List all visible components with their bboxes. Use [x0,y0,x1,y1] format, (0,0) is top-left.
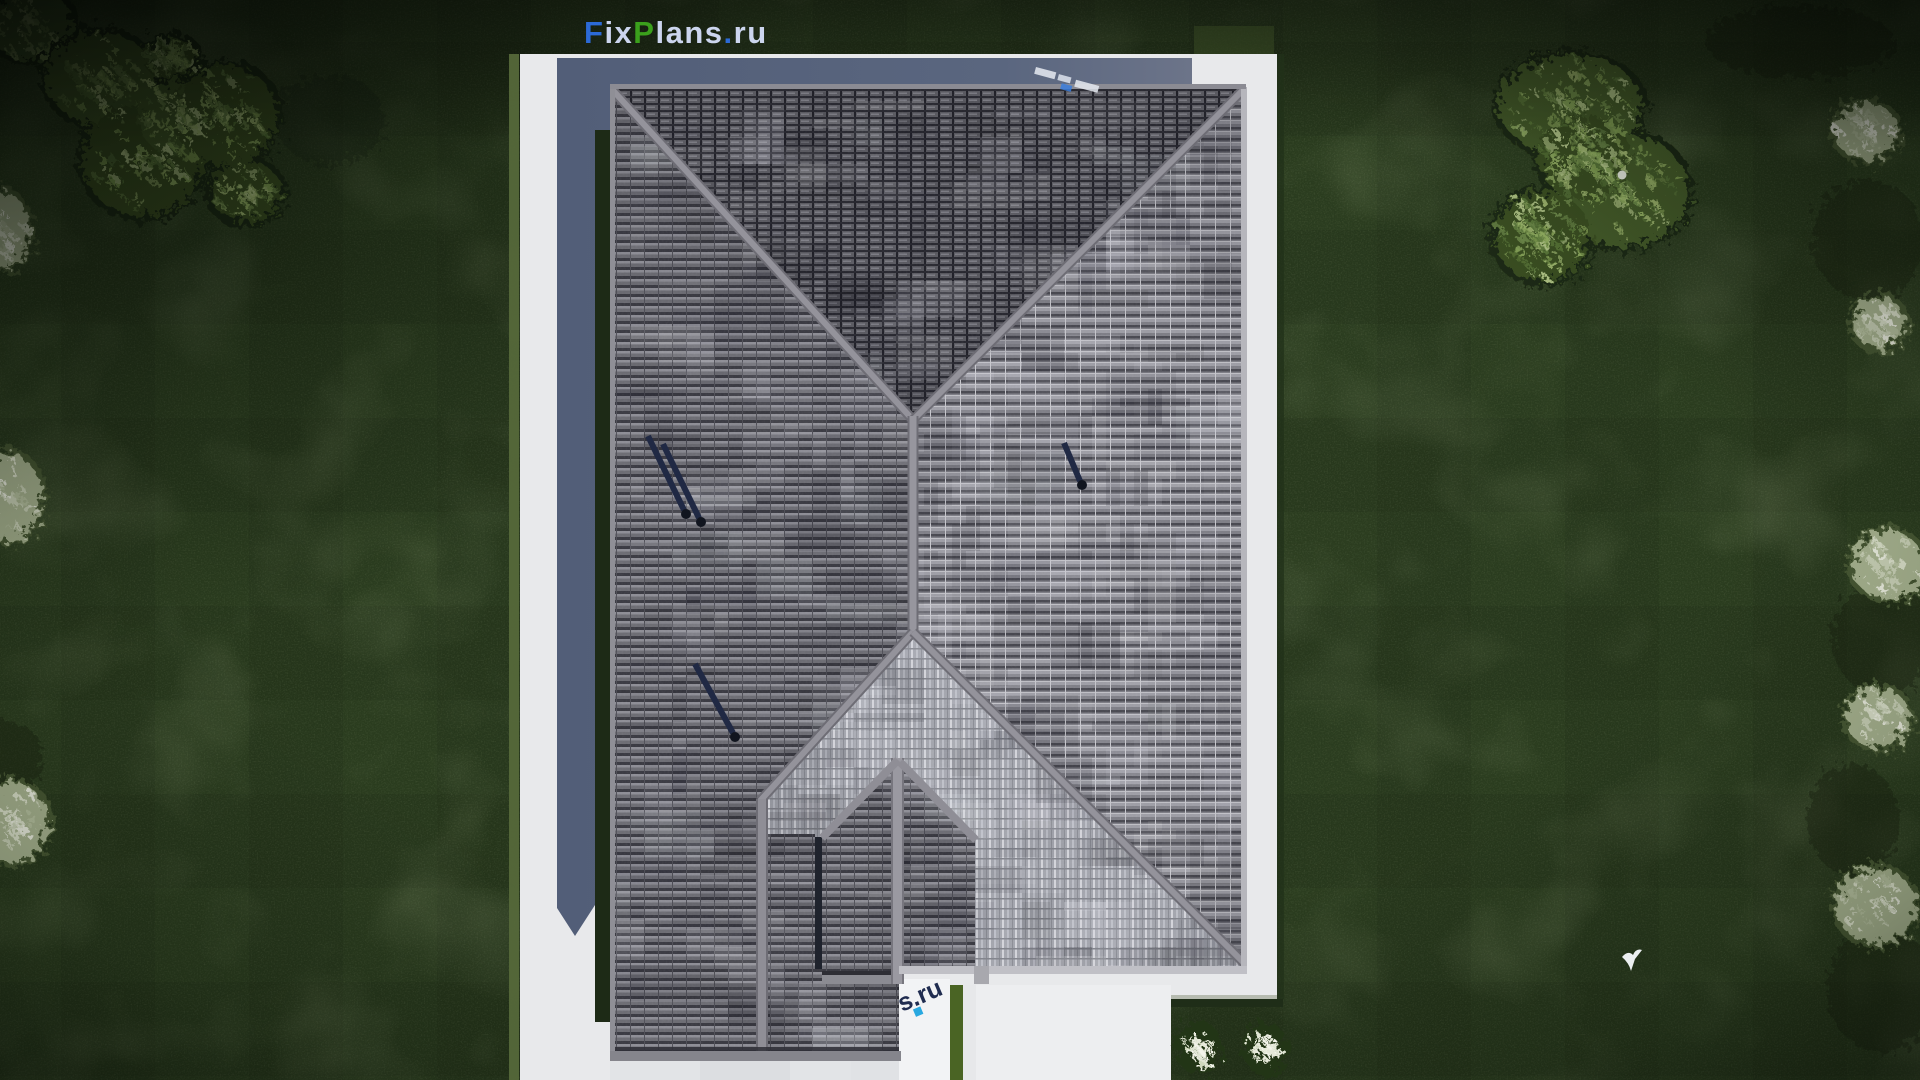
svg-text:FixPlans.ru: FixPlans.ru [584,15,768,50]
